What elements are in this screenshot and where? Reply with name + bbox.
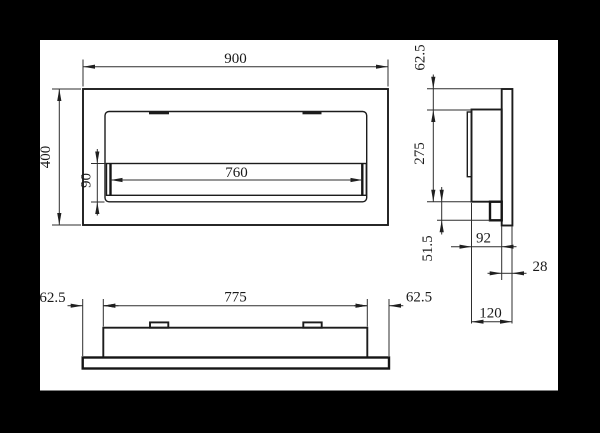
dim-label-bottom-inset: 51.5 bbox=[420, 235, 436, 261]
screenshot-root: { "drawing": { "colors": { "outer_backgr… bbox=[0, 0, 600, 433]
dim-label-body-height: 275 bbox=[412, 142, 428, 165]
technical-drawing: 900 400 760 90 62.5 275 51.5 bbox=[0, 0, 600, 433]
dim-label-burner-height: 90 bbox=[79, 173, 95, 188]
dim-label-total-depth: 120 bbox=[479, 306, 502, 322]
drawing-sheet bbox=[40, 40, 558, 391]
dim-label-top-inset: 62.5 bbox=[413, 44, 429, 70]
dim-label-burner-width: 760 bbox=[225, 165, 248, 181]
dim-label-body-depth: 92 bbox=[476, 231, 491, 247]
front-tab-right bbox=[303, 112, 322, 115]
dim-label-front-width: 900 bbox=[224, 51, 247, 67]
front-tab-left bbox=[149, 112, 169, 115]
dim-label-left-inset: 62.5 bbox=[39, 290, 65, 306]
dim-label-flange-depth: 28 bbox=[533, 259, 548, 275]
dim-label-inner-width: 775 bbox=[224, 290, 247, 306]
dim-label-right-inset: 62.5 bbox=[406, 290, 432, 306]
dim-label-front-height: 400 bbox=[38, 146, 54, 169]
